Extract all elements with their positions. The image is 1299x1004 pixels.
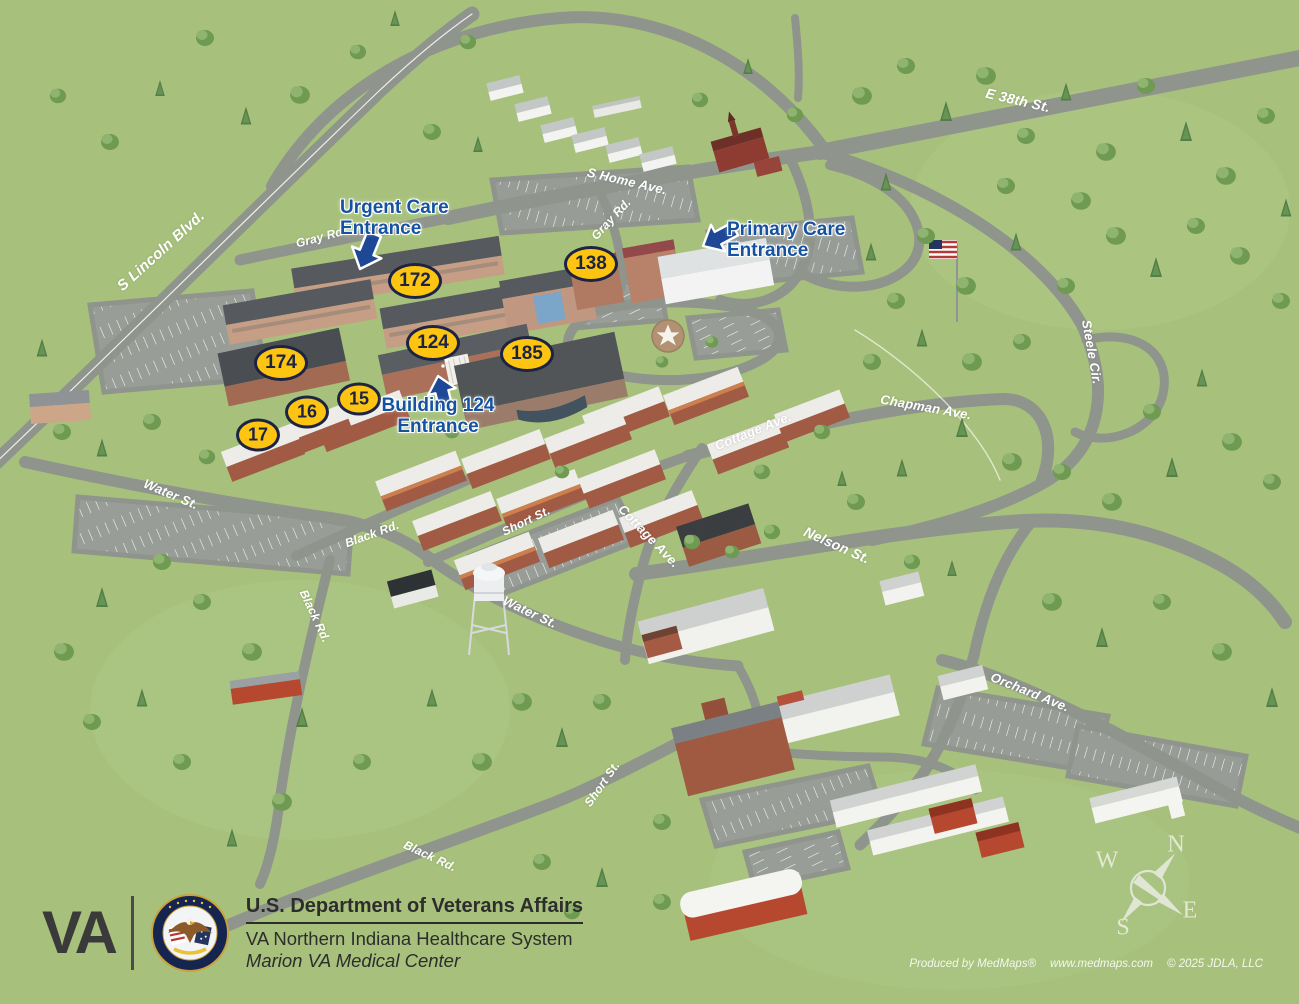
- primary-care-entrance-label: Primary Care Entrance: [727, 219, 845, 261]
- building-badge-17: 17: [236, 419, 280, 452]
- building-badge-16: 16: [285, 396, 329, 429]
- credit-copyright: © 2025 JDLA, LLC: [1167, 958, 1263, 970]
- building-badge-174: 174: [254, 345, 308, 381]
- compass-east-label: E: [1183, 898, 1198, 925]
- building-badge-138: 138: [564, 246, 618, 282]
- star-plaza: [652, 320, 684, 352]
- urgent-care-entrance-label: Urgent Care Entrance: [340, 197, 449, 239]
- compass-west-label: W: [1096, 848, 1119, 875]
- footer-identity-block: VA U.S. Department of Veterans Affairs V…: [42, 893, 583, 973]
- building-124-entrance-label: Building 124 Entrance: [372, 395, 504, 437]
- building-badge-185: 185: [500, 336, 554, 372]
- map-credits: Produced by MedMaps® www.medmaps.com © 2…: [909, 958, 1263, 970]
- building-badge-172: 172: [388, 263, 442, 299]
- footer-divider: [131, 896, 134, 970]
- va-logo: VA: [42, 903, 115, 963]
- compass-north-label: N: [1167, 832, 1184, 859]
- campus-map: S Lincoln Blvd. E 38th St. S Home Ave. G…: [0, 0, 1299, 1004]
- building-badge-124: 124: [406, 325, 460, 361]
- footer-facility-name: Marion VA Medical Center: [246, 950, 583, 972]
- compass-south-label: S: [1116, 915, 1129, 942]
- credit-url: www.medmaps.com: [1050, 958, 1153, 970]
- va-seal-icon: [150, 893, 230, 973]
- footer-agency-name: U.S. Department of Veterans Affairs: [246, 895, 583, 924]
- credit-produced-by: Produced by MedMaps®: [909, 958, 1036, 970]
- footer-system-name: VA Northern Indiana Healthcare System: [246, 928, 583, 950]
